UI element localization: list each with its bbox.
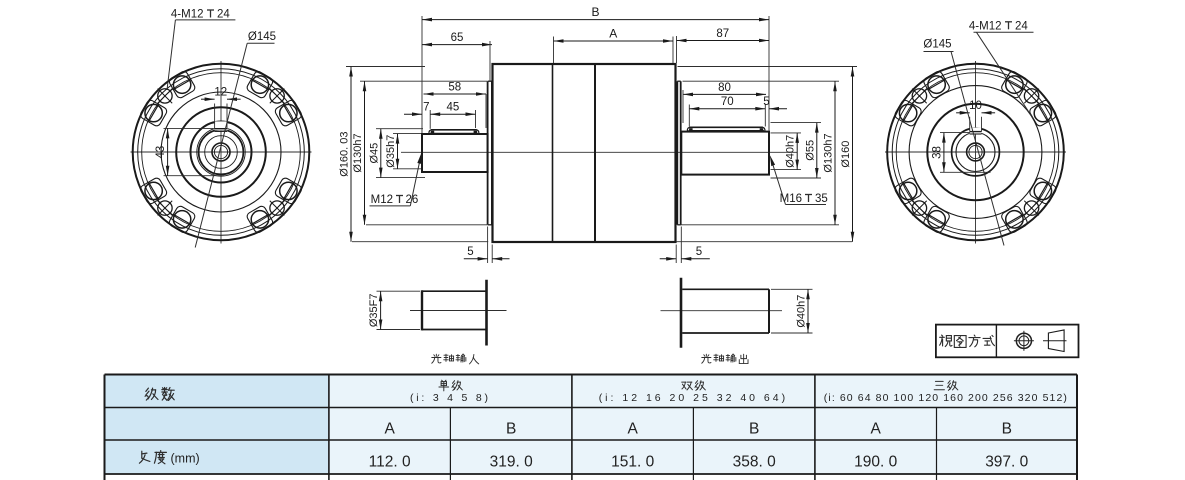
svg-text:65: 65 xyxy=(451,32,464,44)
svg-text:112. 0: 112. 0 xyxy=(369,453,411,470)
svg-text:70: 70 xyxy=(721,96,734,108)
svg-text:4-M12: 4-M12 xyxy=(969,20,1002,32)
svg-text:397. 0: 397. 0 xyxy=(985,453,1028,470)
svg-text:35: 35 xyxy=(815,193,828,205)
svg-text:4-M12: 4-M12 xyxy=(171,9,204,21)
svg-text:319. 0: 319. 0 xyxy=(490,453,533,470)
svg-text:Ø130h7: Ø130h7 xyxy=(823,133,835,172)
svg-text:B: B xyxy=(591,5,599,19)
svg-text:A: A xyxy=(609,27,617,41)
svg-text:190. 0: 190. 0 xyxy=(854,453,897,470)
svg-text:45: 45 xyxy=(446,102,459,114)
svg-text:Ø130h7: Ø130h7 xyxy=(352,133,364,172)
svg-text:7: 7 xyxy=(423,102,429,114)
svg-text:B: B xyxy=(749,420,759,437)
svg-text:A: A xyxy=(627,420,638,437)
svg-text:M16: M16 xyxy=(780,193,802,205)
svg-text:M12: M12 xyxy=(371,194,393,206)
svg-text:A: A xyxy=(871,420,882,437)
svg-text:43: 43 xyxy=(155,146,167,159)
svg-text:Ø160. 03: Ø160. 03 xyxy=(339,131,351,176)
svg-text:B: B xyxy=(506,420,516,437)
svg-text:5: 5 xyxy=(763,96,769,108)
svg-text:38: 38 xyxy=(931,146,943,159)
svg-text:(i: 3 4 5 8): (i: 3 4 5 8) xyxy=(410,392,491,404)
svg-text:87: 87 xyxy=(716,28,729,40)
svg-text:A: A xyxy=(384,420,395,437)
svg-text:Ø40h7: Ø40h7 xyxy=(785,135,797,168)
svg-text:Ø35F7: Ø35F7 xyxy=(368,294,380,328)
svg-text:Ø35h7: Ø35h7 xyxy=(385,135,397,168)
svg-text:Ø145: Ø145 xyxy=(248,31,276,43)
svg-text:12: 12 xyxy=(214,87,227,99)
svg-text:Ø45: Ø45 xyxy=(368,143,380,164)
svg-text:(i: 12 16 20 25 32 40 64): (i: 12 16 20 25 32 40 64) xyxy=(599,392,788,404)
svg-text:5: 5 xyxy=(467,246,473,258)
svg-text:Ø145: Ø145 xyxy=(923,39,951,51)
svg-text:151. 0: 151. 0 xyxy=(611,453,654,470)
svg-text:24: 24 xyxy=(1015,20,1028,32)
svg-text:Ø40h7: Ø40h7 xyxy=(796,295,808,328)
svg-text:(mm): (mm) xyxy=(171,451,200,465)
svg-text:Ø55: Ø55 xyxy=(804,140,816,161)
svg-text:Ø160: Ø160 xyxy=(840,141,852,168)
svg-text:10: 10 xyxy=(969,100,982,112)
svg-text:B: B xyxy=(1002,420,1012,437)
svg-text:24: 24 xyxy=(217,9,230,21)
svg-text:5: 5 xyxy=(696,246,702,258)
svg-text:358. 0: 358. 0 xyxy=(733,453,776,470)
svg-text:(i: 60 64 80 100 120 160 200 2: (i: 60 64 80 100 120 160 200 256 320 512… xyxy=(824,392,1068,404)
svg-text:58: 58 xyxy=(448,82,461,94)
svg-text:80: 80 xyxy=(718,82,731,94)
